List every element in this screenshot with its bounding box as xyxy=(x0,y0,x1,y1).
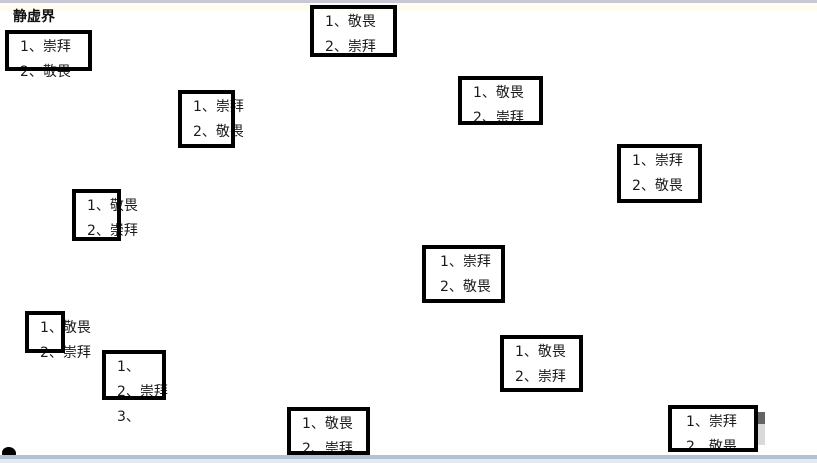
box-line: 1、崇拜 xyxy=(20,35,92,60)
clipped-box-fragment xyxy=(757,412,765,445)
box-line: 2、敬畏 xyxy=(440,275,505,300)
box-line: 1、崇拜 xyxy=(686,410,758,435)
concept-box-6[interactable]: 1、敬畏 2、崇拜 xyxy=(72,189,121,241)
box-line: 2、崇拜 xyxy=(473,106,543,131)
concept-box-4[interactable]: 1、敬畏 2、崇拜 xyxy=(458,76,543,125)
concept-box-12[interactable]: 1、崇拜 2、敬畏 xyxy=(668,405,758,452)
box-line: 2、崇拜 xyxy=(87,219,121,244)
concept-box-11[interactable]: 1、敬畏 2、崇拜 xyxy=(500,335,583,392)
concept-box-1[interactable]: 1、崇拜 2、敬畏 xyxy=(5,30,92,71)
box-line: 1、敬畏 xyxy=(515,340,583,365)
concept-box-3[interactable]: 1、崇拜 2、敬畏 xyxy=(178,90,235,148)
box-line: 2、崇拜 xyxy=(40,341,65,366)
box-line: 2、敬畏 xyxy=(686,435,758,460)
box-line: 1、敬畏 xyxy=(40,316,65,341)
box-line: 1、 xyxy=(117,355,166,380)
box-line: 1、敬畏 xyxy=(87,194,121,219)
box-line: 2、敬畏 xyxy=(193,120,235,145)
box-line: 1、崇拜 xyxy=(440,250,505,275)
top-highlight-band xyxy=(0,3,817,11)
box-line: 3、 xyxy=(117,405,166,430)
box-line: 1、敬畏 xyxy=(325,10,397,35)
box-line: 2、崇拜 xyxy=(302,437,370,462)
box-line: 1、敬畏 xyxy=(302,412,370,437)
concept-box-2[interactable]: 1、敬畏 2、崇拜 xyxy=(310,5,397,57)
box-line: 1、敬畏 xyxy=(473,81,543,106)
concept-box-8[interactable]: 1、敬畏 2、崇拜 xyxy=(25,311,65,353)
box-line: 2、崇拜 xyxy=(325,35,397,60)
box-line: 2、崇拜 xyxy=(117,380,166,405)
box-line: 1、崇拜 xyxy=(193,95,235,120)
concept-box-9[interactable]: 1、 2、崇拜 3、 xyxy=(102,350,166,400)
box-line: 1、崇拜 xyxy=(632,149,702,174)
box-line: 2、敬畏 xyxy=(20,60,92,85)
box-line: 2、敬畏 xyxy=(632,174,702,199)
concept-box-7[interactable]: 1、崇拜 2、敬畏 xyxy=(422,245,505,303)
concept-box-5[interactable]: 1、崇拜 2、敬畏 xyxy=(617,144,702,203)
canvas-title: 静虚界 xyxy=(13,6,55,26)
concept-box-10[interactable]: 1、敬畏 2、崇拜 xyxy=(287,407,370,455)
whiteboard-canvas[interactable]: 静虚界 1、崇拜 2、敬畏 1、敬畏 2、崇拜 1、崇拜 2、敬畏 1、敬畏 2… xyxy=(0,0,817,463)
box-line: 2、崇拜 xyxy=(515,365,583,390)
